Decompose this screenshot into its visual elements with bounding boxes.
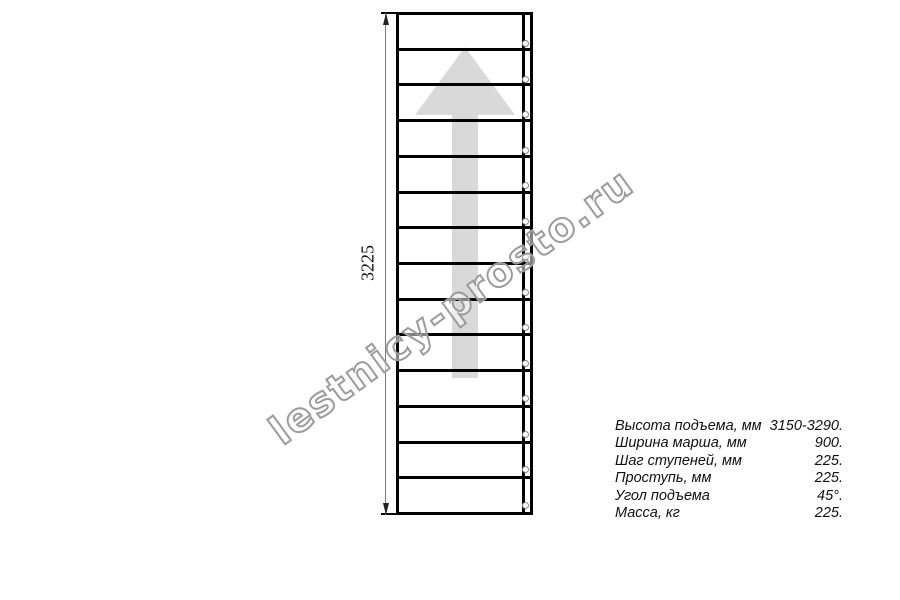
spec-value: 3150-3290. [770,418,843,435]
drawing-canvas: 3225 lestnicy-prosto.ru Высота подъема, … [0,0,900,600]
mount-hole-icon [522,147,529,154]
dimension-arrowhead-down-icon [383,503,389,515]
mount-hole-icon [522,324,529,331]
mount-hole-icon [522,111,529,118]
tread [399,444,530,480]
spec-value: 45°. [817,488,843,505]
spec-value: 225. [815,453,843,470]
spec-label: Ширина марша, мм [615,435,747,452]
mount-hole-icon [522,395,529,402]
dimension-line [385,13,386,515]
spec-label: Угол подъема [615,488,710,505]
mount-hole-icon [522,182,529,189]
tread [399,194,530,230]
tread [399,479,530,512]
tread [399,51,530,87]
spec-row: Высота подъема, мм 3150-3290. [615,418,843,435]
tread [399,158,530,194]
spec-value: 225. [815,505,843,522]
mount-hole-icon [522,360,529,367]
mount-hole-icon [522,466,529,473]
spec-row: Масса, кг 225. [615,505,843,522]
mount-hole-icon [522,76,529,83]
spec-label: Проступь, мм [615,470,711,487]
mount-hole-icon [522,431,529,438]
spec-value: 900. [815,435,843,452]
dimension-label: 3225 [358,245,379,281]
tread [399,86,530,122]
tread [399,122,530,158]
dimension-arrowhead-up-icon [383,13,389,25]
spec-row: Ширина марша, мм 900. [615,435,843,452]
spec-label: Шаг ступеней, мм [615,453,742,470]
spec-label: Масса, кг [615,505,680,522]
mount-hole-icon [522,502,529,509]
spec-value: 225. [815,470,843,487]
tread [399,15,530,51]
tread [399,372,530,408]
mount-hole-icon [522,289,529,296]
mount-hole-icon [522,40,529,47]
spec-label: Высота подъема, мм [615,418,762,435]
tread [399,408,530,444]
spec-row: Шаг ступеней, мм 225. [615,453,843,470]
spec-row: Проступь, мм 225. [615,470,843,487]
spec-table: Высота подъема, мм 3150-3290. Ширина мар… [615,418,843,522]
spec-row: Угол подъема 45°. [615,488,843,505]
